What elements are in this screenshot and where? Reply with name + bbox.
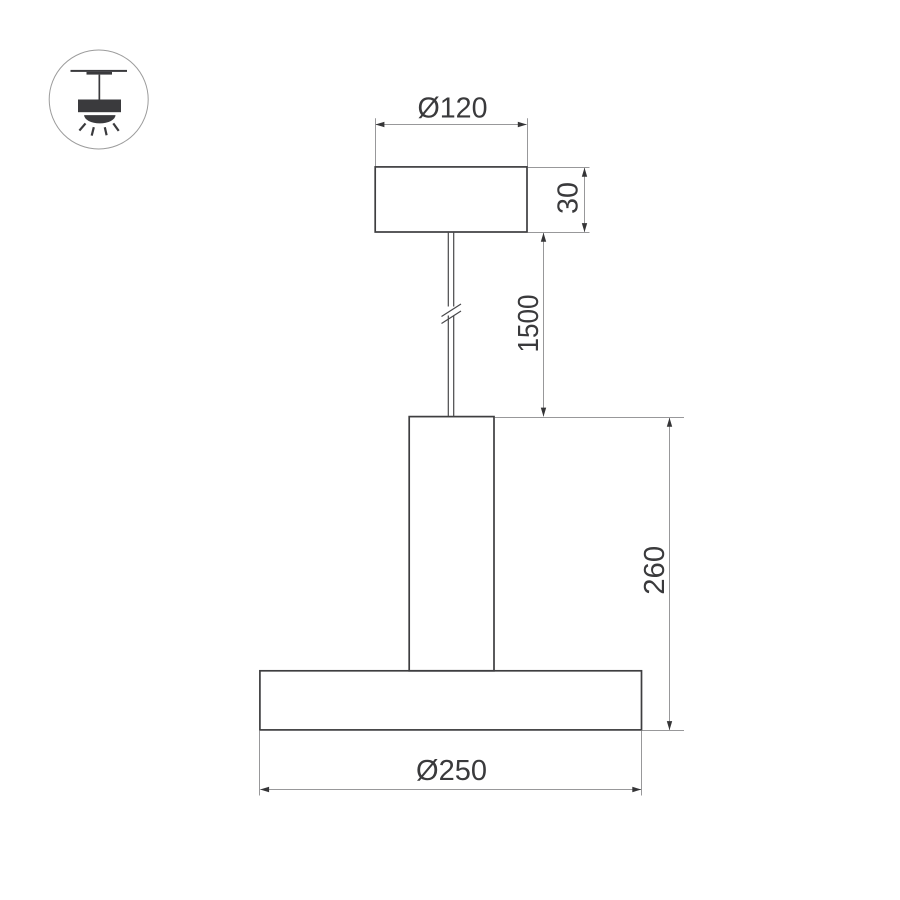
svg-text:1500: 1500: [513, 295, 545, 353]
svg-text:Ø120: Ø120: [418, 93, 488, 125]
svg-text:260: 260: [639, 546, 671, 595]
svg-text:30: 30: [553, 182, 585, 214]
svg-text:Ø250: Ø250: [416, 755, 487, 787]
